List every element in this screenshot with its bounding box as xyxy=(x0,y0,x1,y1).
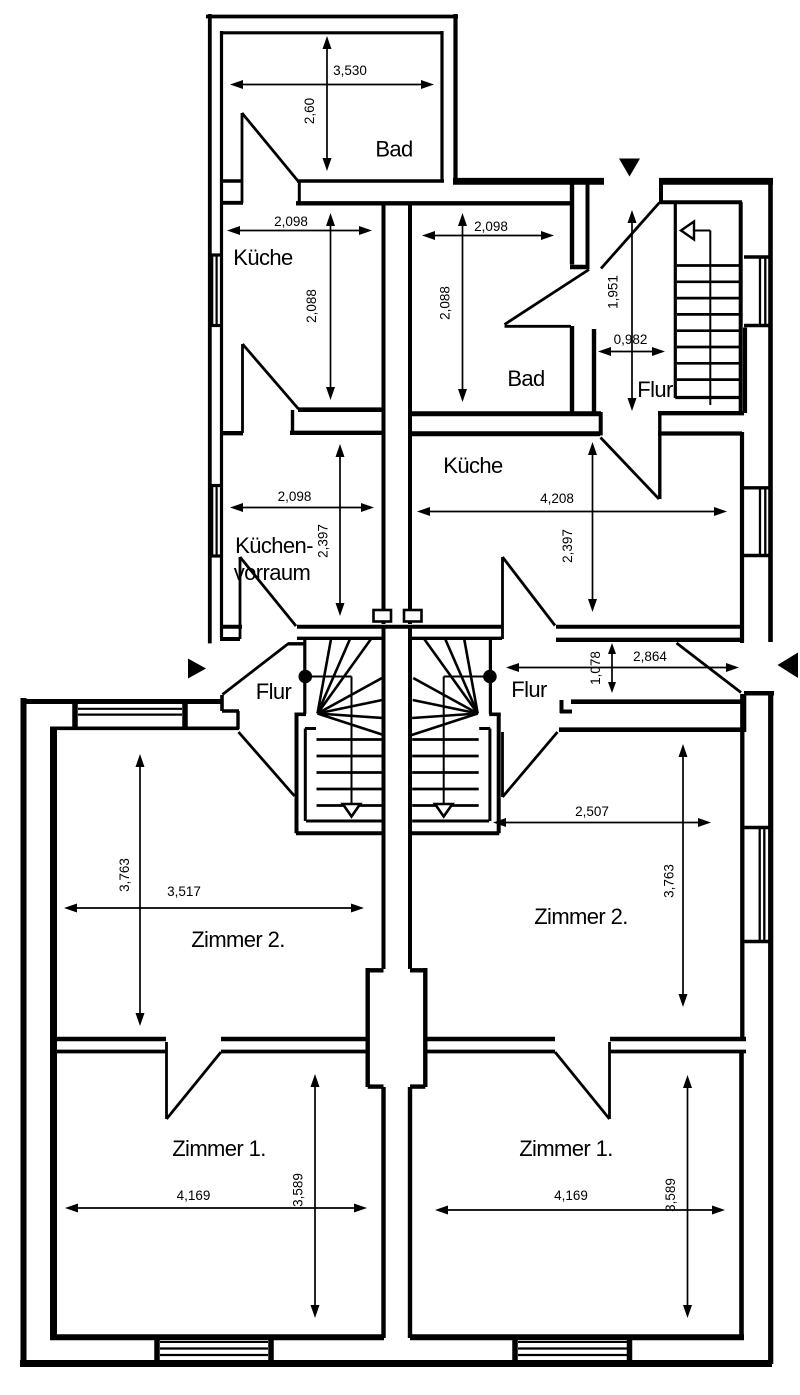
svg-text:2,397: 2,397 xyxy=(560,529,575,563)
svg-text:2,088: 2,088 xyxy=(304,289,319,323)
svg-text:Küche: Küche xyxy=(233,245,293,270)
svg-text:2,098: 2,098 xyxy=(474,219,508,234)
svg-text:3,589: 3,589 xyxy=(291,1173,306,1207)
svg-text:4,169: 4,169 xyxy=(177,1188,211,1203)
svg-text:2,098: 2,098 xyxy=(278,489,312,504)
svg-text:Zimmer 1.: Zimmer 1. xyxy=(172,1136,266,1161)
svg-text:2,397: 2,397 xyxy=(316,524,331,558)
svg-text:Küche: Küche xyxy=(443,453,503,478)
svg-text:4,169: 4,169 xyxy=(554,1188,588,1203)
svg-text:Bad: Bad xyxy=(375,137,412,162)
svg-text:2,098: 2,098 xyxy=(274,214,308,229)
svg-text:Flur: Flur xyxy=(511,677,547,702)
svg-text:3,763: 3,763 xyxy=(117,858,132,892)
svg-text:3,517: 3,517 xyxy=(167,884,201,899)
svg-text:2,60: 2,60 xyxy=(302,98,317,124)
svg-text:0,982: 0,982 xyxy=(614,332,648,347)
svg-text:3,530: 3,530 xyxy=(333,63,367,78)
svg-text:4,208: 4,208 xyxy=(540,491,574,506)
svg-text:2,864: 2,864 xyxy=(633,649,667,664)
svg-text:2,088: 2,088 xyxy=(438,286,453,320)
svg-text:Zimmer 2.: Zimmer 2. xyxy=(534,904,628,929)
svg-text:Küchen-: Küchen- xyxy=(235,533,313,558)
svg-text:1,951: 1,951 xyxy=(606,275,621,309)
svg-text:Flur: Flur xyxy=(637,377,673,402)
svg-text:3,589: 3,589 xyxy=(663,1178,678,1212)
svg-text:Zimmer 2.: Zimmer 2. xyxy=(191,927,285,952)
svg-text:Zimmer 1.: Zimmer 1. xyxy=(519,1136,613,1161)
svg-text:2,507: 2,507 xyxy=(575,804,609,819)
svg-text:Flur: Flur xyxy=(256,679,292,704)
svg-text:3,763: 3,763 xyxy=(662,864,677,898)
svg-text:Bad: Bad xyxy=(507,366,544,391)
